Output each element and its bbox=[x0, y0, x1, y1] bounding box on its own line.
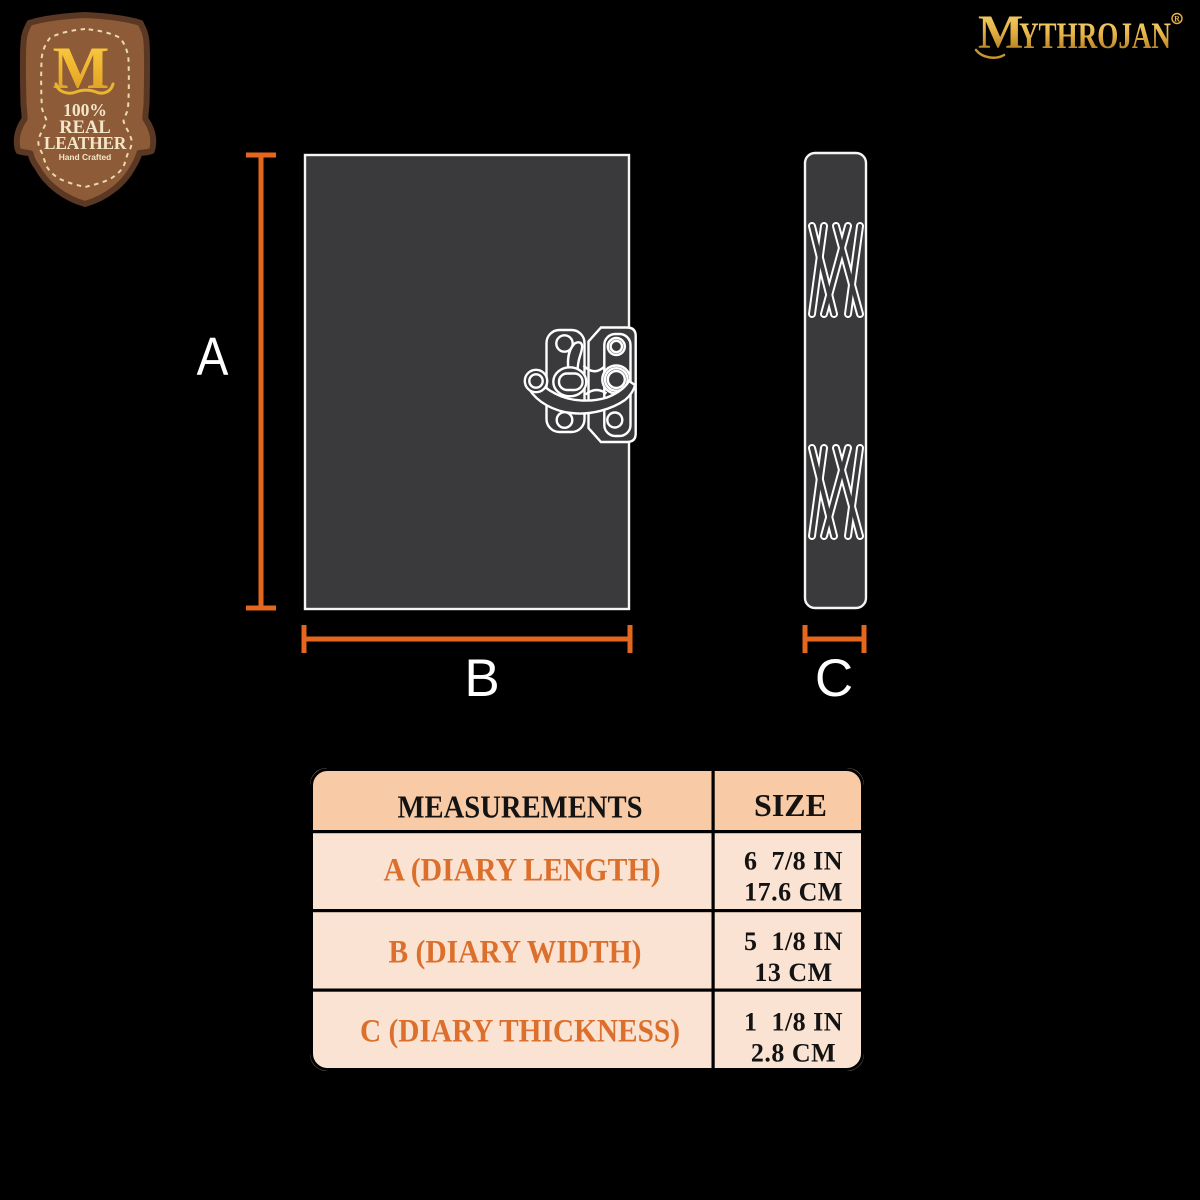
svg-text:1 1/8 IN: 1 1/8 IN bbox=[744, 1008, 843, 1037]
svg-text:5 1/8 IN: 5 1/8 IN bbox=[744, 927, 843, 956]
svg-text:A: A bbox=[197, 326, 229, 386]
svg-text:B (DIARY WIDTH): B (DIARY WIDTH) bbox=[389, 935, 642, 971]
svg-text:MEASUREMENTS: MEASUREMENTS bbox=[398, 789, 643, 825]
svg-text:Hand Crafted: Hand Crafted bbox=[59, 152, 112, 162]
svg-text:B: B bbox=[464, 649, 499, 708]
svg-text:SIZE: SIZE bbox=[754, 787, 827, 823]
svg-text:100%: 100% bbox=[63, 100, 107, 120]
svg-text:LEATHER: LEATHER bbox=[44, 133, 127, 153]
svg-text:C (DIARY THICKNESS): C (DIARY THICKNESS) bbox=[360, 1014, 680, 1050]
svg-text:2.8 CM: 2.8 CM bbox=[751, 1039, 836, 1068]
svg-text:6 7/8 IN: 6 7/8 IN bbox=[744, 847, 843, 876]
svg-text:13 CM: 13 CM bbox=[754, 958, 832, 987]
svg-text:17.6 CM: 17.6 CM bbox=[744, 878, 843, 907]
svg-text:YTHROJAN: YTHROJAN bbox=[1019, 16, 1171, 57]
svg-text:M: M bbox=[978, 6, 1023, 59]
svg-text:C: C bbox=[815, 649, 853, 708]
svg-text:A (DIARY LENGTH): A (DIARY LENGTH) bbox=[384, 853, 661, 889]
svg-text:R: R bbox=[1174, 15, 1180, 24]
